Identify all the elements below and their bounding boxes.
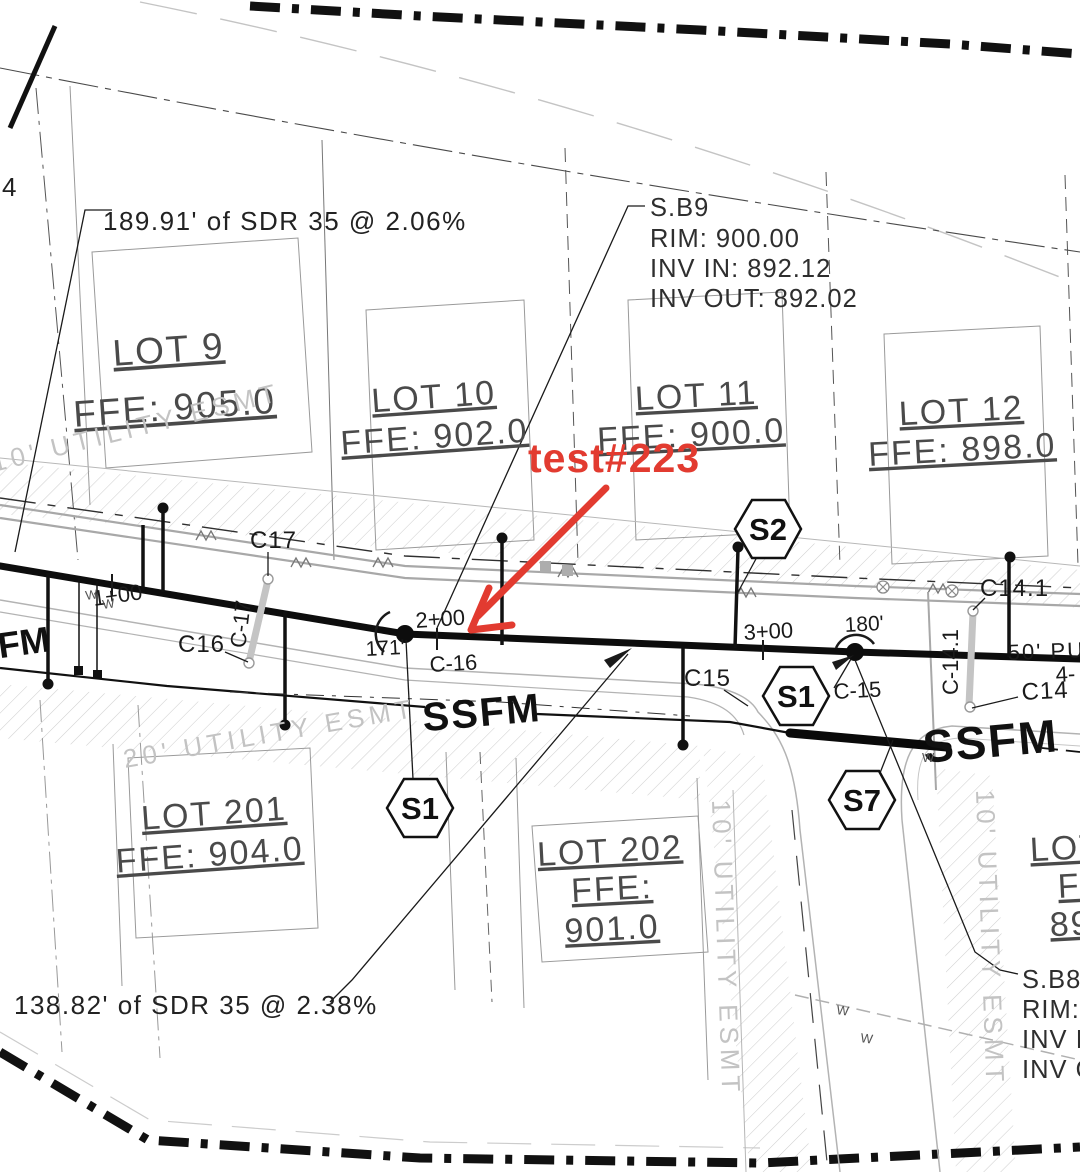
red-annotation-text: test#223: [528, 435, 700, 481]
hex-label-s7: S7: [843, 783, 881, 818]
plan-drawing: S2 S1 S1 S7 LOT 9 FFE: 905.0 LOT 10 FFE:…: [0, 0, 1080, 1172]
callout-c15: C15: [684, 665, 731, 692]
callout-c17: C17: [250, 527, 297, 554]
cleanout-dot: [678, 740, 689, 751]
callout-c-15: C-15: [833, 677, 882, 704]
lot202-label: LOT 202: [536, 828, 683, 874]
lot-right-label: LOT: [1029, 828, 1080, 870]
utility-box: [540, 561, 551, 572]
capsule-c14-1: [969, 612, 973, 706]
lot12-label: LOT 12: [898, 389, 1025, 433]
dim-171: 171': [365, 636, 405, 661]
pipe-note-bottom: 138.82' of SDR 35 @ 2.38%: [14, 990, 378, 1020]
capsule-end: [968, 606, 978, 616]
station-2+00: 2+00: [415, 605, 466, 633]
lot9-label: LOT 9: [111, 325, 226, 374]
sb8-inv-out: INV O: [1022, 1056, 1080, 1084]
lot11-label: LOT 11: [634, 374, 758, 418]
lot-right-ffe: FF: [1057, 865, 1080, 905]
lot202-ffe-value: 901.0: [564, 908, 661, 951]
cleanout-dot: [158, 503, 169, 514]
cleanout-dot: [1005, 552, 1016, 563]
station-4: 4-: [1055, 661, 1076, 687]
fm-label-left: FM: [0, 618, 52, 666]
callout-c16: C16: [178, 631, 225, 658]
sb9-inv-in: INV IN: 892.12: [650, 255, 831, 283]
pipe-note-top: 189.91' of SDR 35 @ 2.06%: [103, 206, 467, 236]
utility-plan-sheet: S2 S1 S1 S7 LOT 9 FFE: 905.0 LOT 10 FFE:…: [0, 0, 1080, 1172]
lot-right-ffe-value: 89: [1049, 904, 1080, 944]
sb8-rim: RIM: 8: [1022, 996, 1080, 1024]
cleanout-dot: [43, 679, 54, 690]
hex-label-s1-right: S1: [777, 679, 815, 714]
hex-label-s2: S2: [749, 512, 787, 547]
lot202-ffe-label: FFE:: [570, 868, 654, 910]
service-box: [74, 666, 83, 675]
hex-label-s1-left: S1: [401, 791, 439, 826]
utility-box: [562, 565, 573, 576]
callout-c-16: C-16: [429, 650, 478, 677]
sb9-name: S.B9: [650, 194, 709, 222]
sb9-rim: RIM: 900.00: [650, 225, 800, 253]
sb9-inv-out: INV OUT: 892.02: [650, 285, 858, 313]
sb8-name: S.B8: [1022, 966, 1080, 994]
station-3+00: 3+00: [743, 617, 794, 645]
row-width-label: 50' PUB: [1007, 637, 1080, 665]
w-mark: W: [922, 750, 935, 765]
callout-c14-1: C14.1: [980, 575, 1049, 602]
dim-180: 180': [844, 612, 884, 637]
sb8-inv-in: INV I: [1022, 1026, 1080, 1054]
capsule-end: [244, 658, 254, 668]
callout-c-14-1-vertical: C-14.1: [938, 629, 963, 695]
cleanout-dot: [497, 533, 508, 544]
corner-lot-number: 4: [2, 172, 18, 202]
